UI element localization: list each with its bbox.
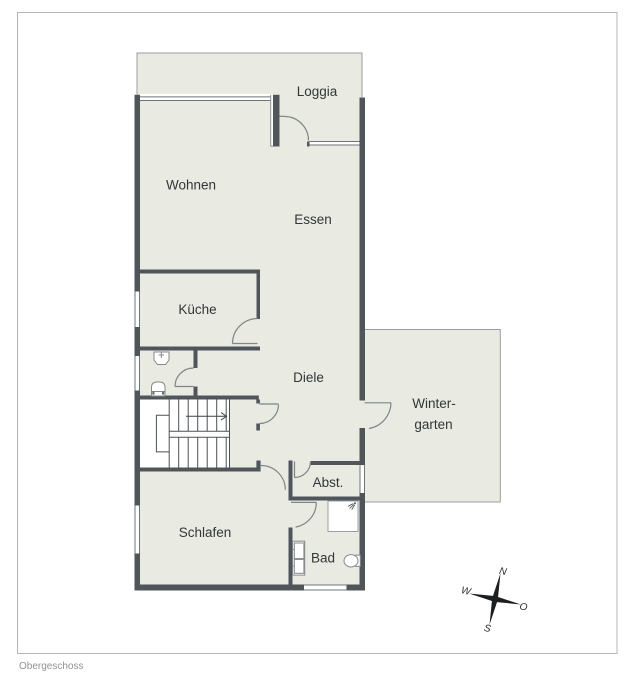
svg-text:Winter-: Winter- (412, 396, 456, 411)
svg-text:Schlafen: Schlafen (179, 525, 232, 540)
svg-text:garten: garten (414, 417, 452, 432)
svg-text:Küche: Küche (178, 302, 216, 317)
svg-text:Wohnen: Wohnen (166, 178, 216, 193)
svg-text:Bad: Bad (311, 551, 335, 566)
svg-text:Abst.: Abst. (313, 475, 344, 490)
svg-text:Loggia: Loggia (297, 84, 338, 99)
svg-text:Diele: Diele (293, 370, 324, 385)
svg-text:Obergeschoss: Obergeschoss (19, 661, 83, 672)
svg-text:Essen: Essen (294, 212, 332, 227)
